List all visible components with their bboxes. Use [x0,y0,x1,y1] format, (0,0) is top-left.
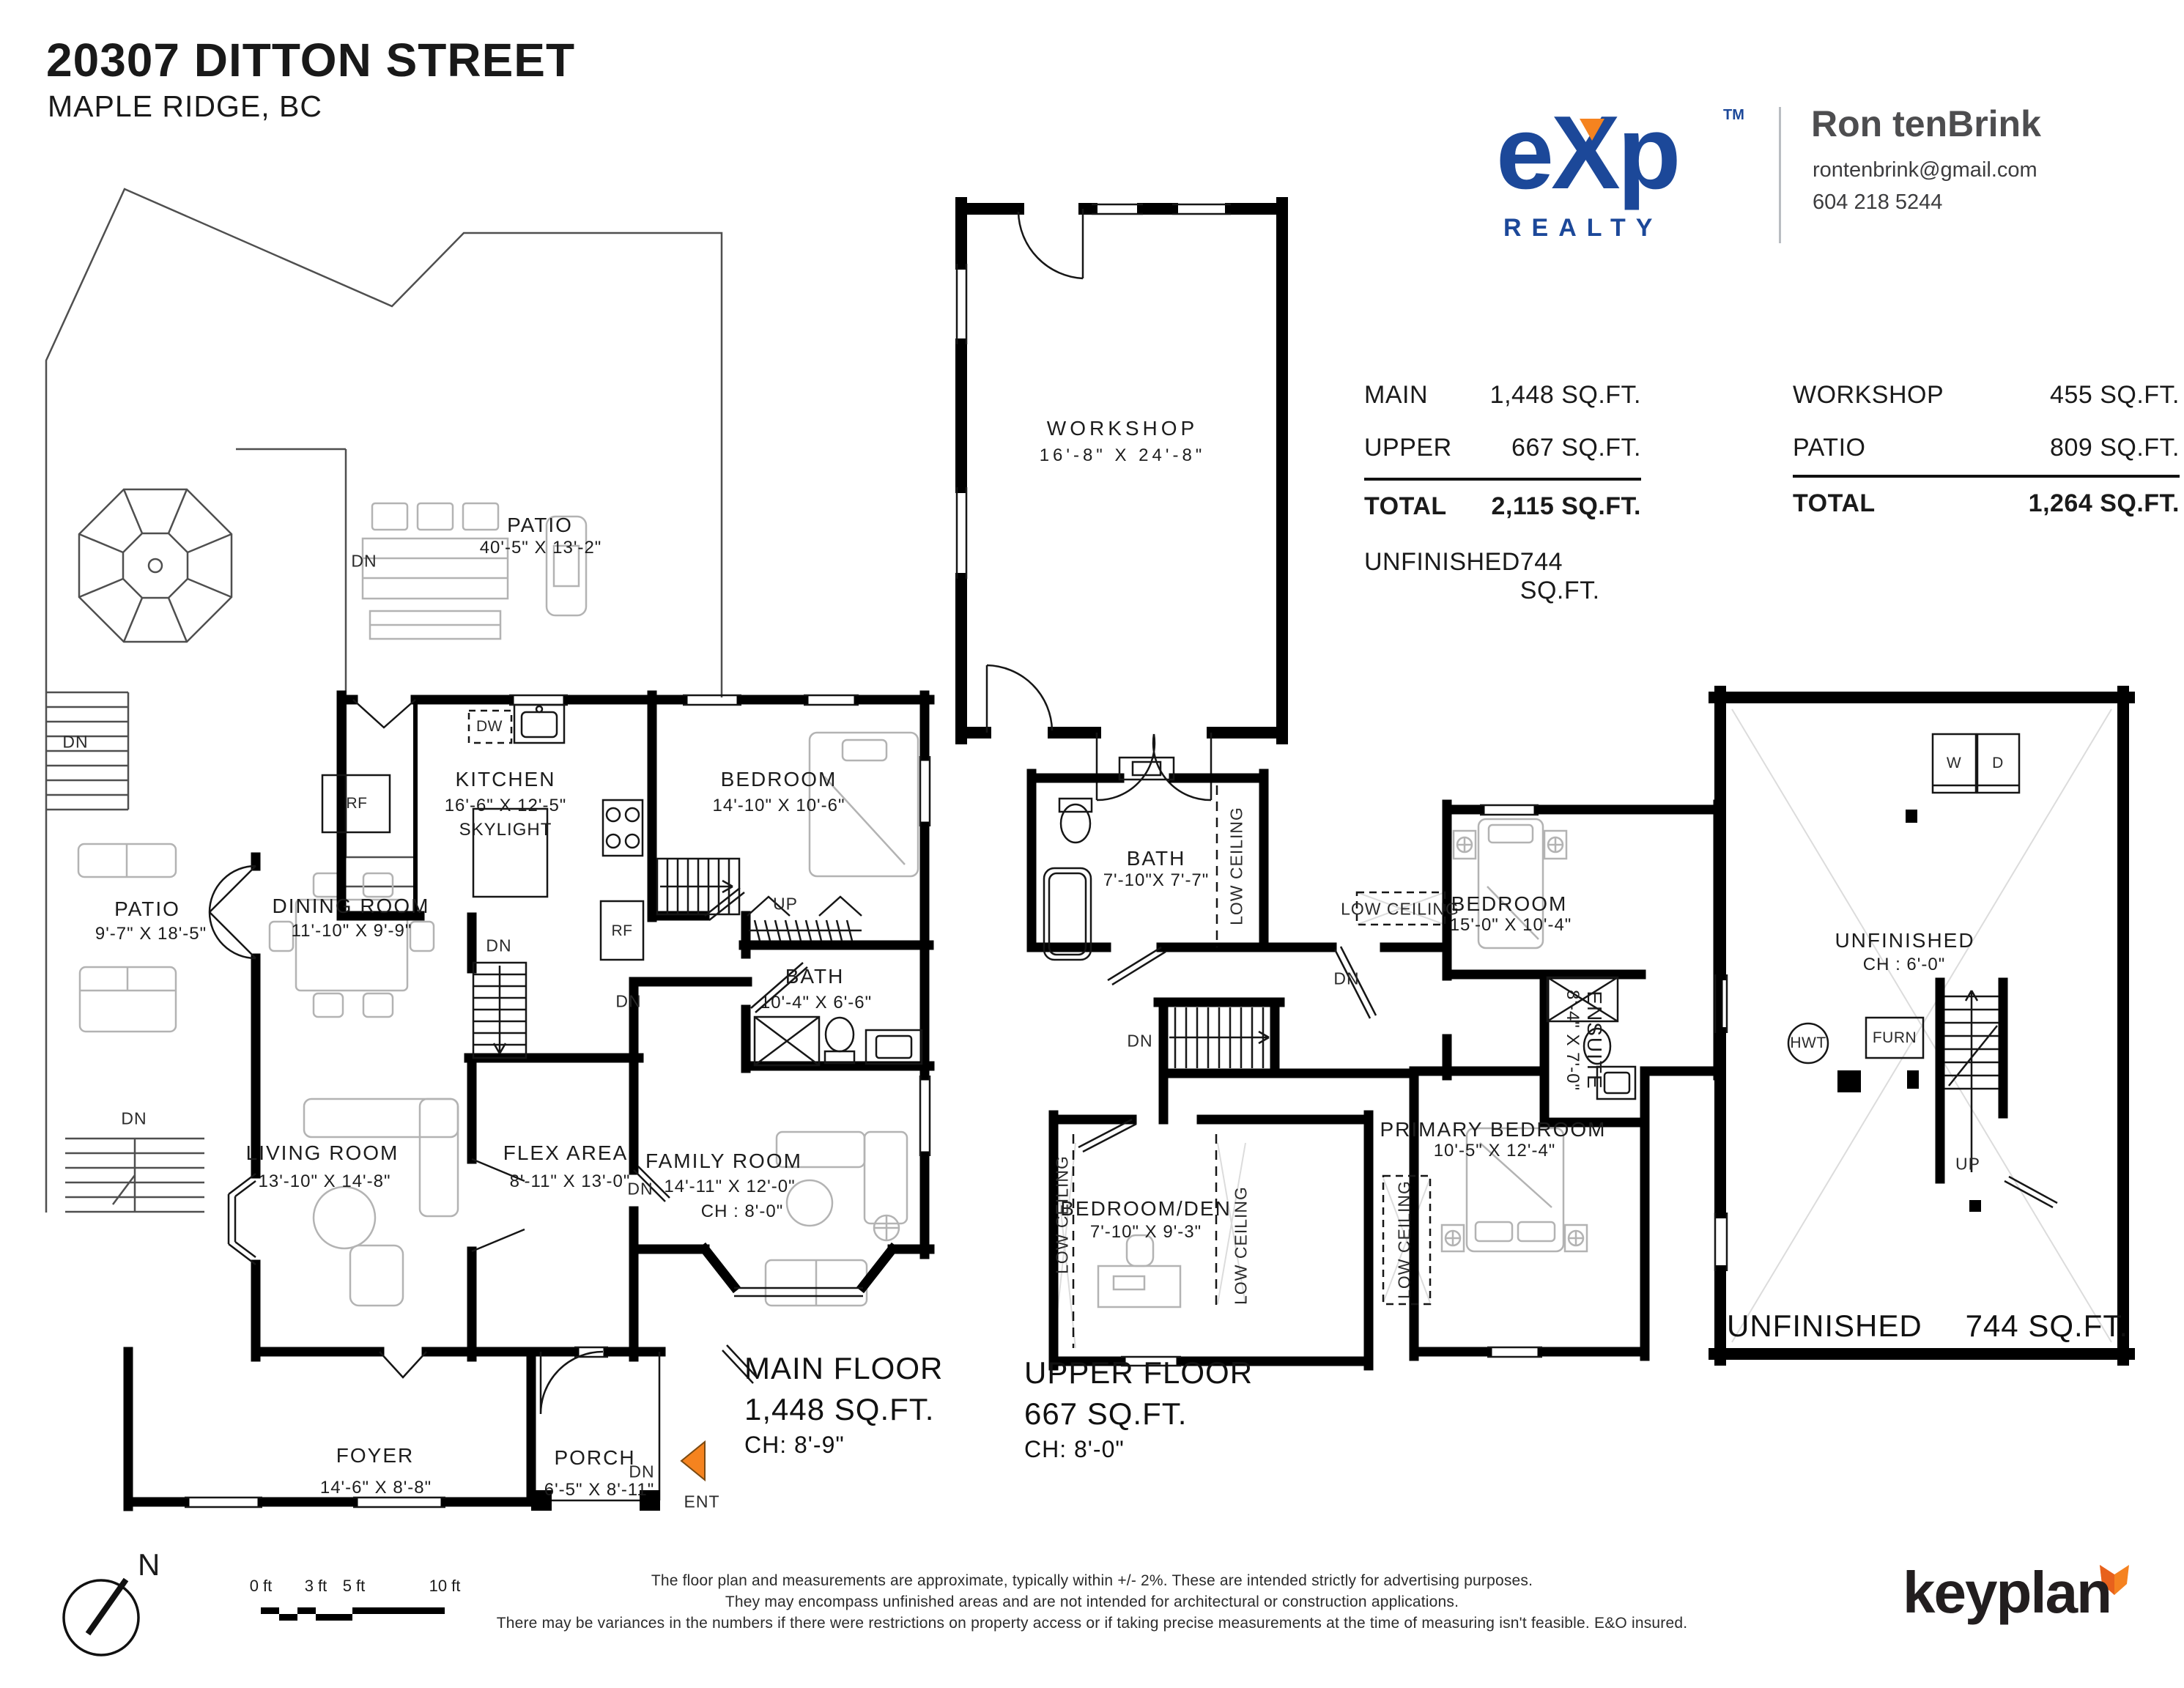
kitchen-label: KITCHEN [456,768,556,791]
dn-label: DN [629,1462,654,1482]
workshop-walls [961,203,1282,738]
washer-label: W [1947,755,1961,772]
flex-dims: 8'-11" X 13'-0" [510,1171,631,1192]
patio-side-label: PATIO [114,897,180,921]
area-value: 809 SQ.FT. [2050,434,2180,462]
dishwasher-label: DW [476,718,503,736]
unfinished-label: UNFINISHED [1835,929,1974,952]
porch-dims: 6'-5" X 8'-11" [544,1480,655,1500]
area-value: 1,264 SQ.FT. [2029,489,2180,518]
page-title: 20307 DITTON STREET [46,33,575,87]
keyplan-logo: keyplan [1903,1559,2111,1626]
entry-arrow [681,1442,705,1480]
page-subtitle: MAPLE RIDGE, BC [48,89,322,124]
up-label: UP [1955,1155,1980,1174]
area-value: 1,448 SQ.FT. [1490,381,1641,410]
area-label: PATIO [1793,434,1865,462]
ensuite-label: ENSUITE [1583,991,1606,1089]
floor-plan-sheet: 20307 DITTON STREET MAPLE RIDGE, BC eXp … [0,0,2184,1688]
dryer-label: D [1992,755,2004,772]
caption-line: CH: 8'-9" [744,1432,943,1459]
caption-line: CH: 8'-0" [1024,1436,1253,1463]
low-ceiling-label: LOW CEILING [1053,1155,1073,1274]
low-ceiling-label: LOW CEILING [1341,900,1459,919]
workshop-dims: 16'-8" X 24'-8" [1040,445,1206,466]
dn-label: DN [627,1180,653,1199]
bedroom-den-dims: 7'-10" X 9'-3" [1090,1222,1202,1243]
living-dims: 13'-10" X 14'-8" [259,1171,391,1192]
disclaimer-line: There may be variances in the numbers if… [0,1615,2184,1632]
area-label: UNFINISHED [1364,548,1520,605]
porch-label: PORCH [554,1446,635,1470]
bedroom-upper-label: BEDROOM [1451,892,1568,916]
bedroom-upper-dims: 15'-0" X 10'-4" [1450,915,1572,936]
dn-label: DN [1127,1032,1152,1051]
area-value: 744 SQ.FT. [1520,548,1641,605]
dn-label: DN [1333,969,1359,989]
north-label: N [138,1547,160,1582]
dn-label: DN [486,936,511,956]
disclaimer-line: They may encompass unfinished areas and … [0,1593,2184,1611]
kitchen-skylight-label: SKYLIGHT [459,820,552,840]
area-label: TOTAL [1793,489,1876,518]
area-row-total-left: TOTAL 2,115 SQ.FT. [1364,492,1641,521]
upper-floor-caption: UPPER FLOOR 667 SQ.FT. CH: 8'-0" [1024,1355,1253,1463]
area-table-right: WORKSHOP 455 SQ.FT. PATIO 809 SQ.FT. TOT… [1793,0,2180,586]
low-ceiling-label: LOW CEILING [1227,807,1247,925]
area-row-upper: UPPER 667 SQ.FT. [1364,434,1641,462]
caption-line: 667 SQ.FT. [1024,1396,1253,1432]
caption-line: UNFINISHED [1727,1308,1922,1344]
area-label: UPPER [1364,434,1452,462]
family-dims: 14'-11" X 12'-0" [664,1177,795,1197]
unfinished-ceiling-height: CH : 6'-0" [1863,955,1945,975]
area-row-patio: PATIO 809 SQ.FT. [1793,434,2180,462]
bedroom-dims: 14'-10" X 10'-6" [713,796,845,816]
entry-label: ENT [684,1492,720,1512]
area-label: TOTAL [1364,492,1447,521]
primary-bedroom-dims: 10'-5" X 12'-4" [1434,1141,1556,1161]
family-ceiling-height: CH : 8'-0" [701,1202,783,1222]
patio-side-dims: 9'-7" X 18'-5" [95,924,207,944]
primary-bedroom-label: PRIMARY BEDROOM [1380,1118,1606,1141]
area-row-total-right: TOTAL 1,264 SQ.FT. [1793,489,2180,518]
workshop-details [957,204,1231,800]
area-label: WORKSHOP [1793,381,1944,410]
patio-top-label: PATIO [507,514,573,537]
disclaimer-line: The floor plan and measurements are appr… [0,1572,2184,1590]
kitchen-dims: 16'-6" X 12'-5" [445,796,567,816]
header-divider [1779,107,1781,243]
area-table-left: MAIN 1,448 SQ.FT. UPPER 667 SQ.FT. TOTAL… [1364,0,1641,586]
foyer-dims: 14'-6" X 8'-8" [320,1478,432,1498]
living-label: LIVING ROOM [246,1141,399,1165]
dining-label: DINING ROOM [273,895,430,918]
low-ceiling-label: LOW CEILING [1395,1180,1415,1299]
area-row-main: MAIN 1,448 SQ.FT. [1364,381,1641,410]
foyer-label: FOYER [336,1444,414,1467]
hot-water-tank-label: HWT [1790,1034,1826,1052]
dn-label: DN [615,992,641,1012]
up-label: UP [773,895,798,914]
area-row-unfinished: UNFINISHED 744 SQ.FT. [1364,548,1641,605]
area-rule-right [1793,475,2180,478]
bath-upper-label: BATH [1127,847,1186,870]
area-value: 2,115 SQ.FT. [1492,492,1641,521]
area-value: 455 SQ.FT. [2050,381,2180,410]
patio-top-dims: 40'-5" X 13'-2" [480,538,602,558]
ensuite-dims: 8'-4" X 7'-0" [1562,990,1583,1091]
bath-label: BATH [785,965,845,988]
flex-label: FLEX AREA [503,1141,629,1165]
dn-label: DN [351,552,377,571]
dn-label: DN [121,1109,147,1129]
bath-upper-dims: 7'-10"X 7'-7" [1103,870,1210,891]
caption-line: 744 SQ.FT. [1966,1308,2128,1344]
dining-dims: 11'-10" X 9'-9" [292,921,412,941]
caption-line: UPPER FLOOR [1024,1355,1253,1391]
bedroom-label: BEDROOM [721,768,837,791]
basement-caption: UNFINISHED 744 SQ.FT. [1727,1308,2128,1344]
fridge-label: RF [347,795,368,812]
area-value: 667 SQ.FT. [1511,434,1641,462]
dn-label: DN [62,733,88,752]
bath-dims: 10'-4" X 6'-6" [760,993,872,1013]
area-label: MAIN [1364,381,1428,410]
exp-tm-mark: TM [1723,107,1744,124]
caption-line: 1,448 SQ.FT. [744,1392,943,1427]
furnace-label: FURN [1873,1029,1917,1047]
low-ceiling-label: LOW CEILING [1232,1186,1251,1305]
workshop-label: WORKSHOP [1047,417,1198,440]
fridge-label: RF [612,922,633,940]
area-row-workshop: WORKSHOP 455 SQ.FT. [1793,381,2180,410]
caption-line: MAIN FLOOR [744,1351,943,1386]
bedroom-den-label: BEDROOM/DEN [1060,1197,1232,1221]
main-floor-caption: MAIN FLOOR 1,448 SQ.FT. CH: 8'-9" [744,1351,943,1459]
area-rule-left [1364,478,1641,481]
family-label: FAMILY ROOM [645,1150,802,1173]
